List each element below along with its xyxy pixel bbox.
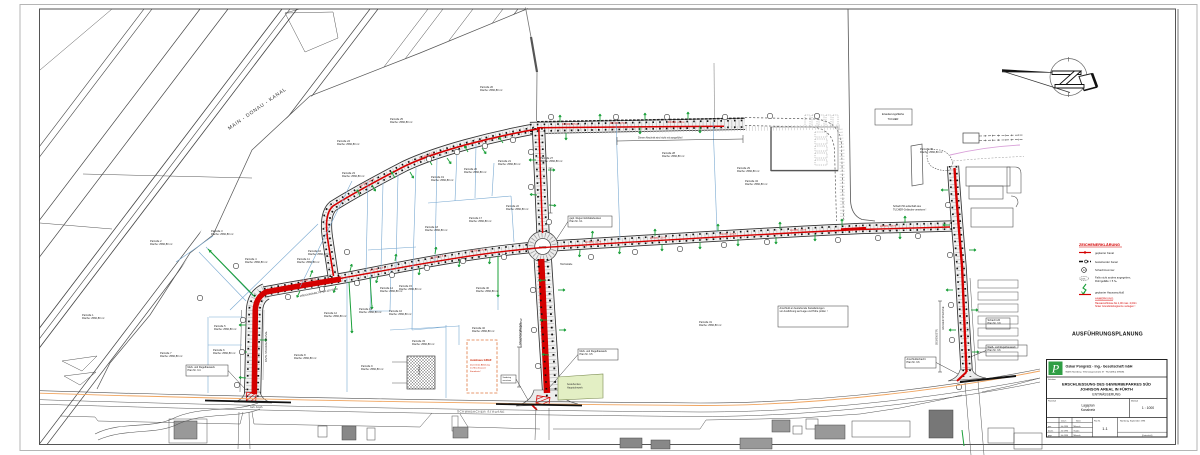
svg-text:Kanalnetz !: Kanalnetz ! [470, 370, 481, 373]
svg-text:Fläche: 2582,80 m²: Fläche: 2582,80 m² [506, 207, 528, 211]
svg-text:DN 300 - 2,5 m: DN 300 - 2,5 m [720, 232, 736, 236]
svg-text:Svejda: Svejda [1074, 431, 1081, 433]
svg-text:Fläche: 2582,80 m²: Fläche: 2582,80 m² [425, 228, 447, 232]
svg-text:Fläche: 2582,80 m²: Fläche: 2582,80 m² [214, 327, 236, 331]
svg-text:Fläche: 2582,80 m²: Fläche: 2582,80 m² [480, 88, 502, 92]
svg-text:Fläche: 2582,80 m²: Fläche: 2582,80 m² [540, 159, 562, 163]
svg-text:Fläche: 2582,80 m²: Fläche: 2582,80 m² [399, 287, 421, 291]
svg-text:Fläche: 2582,80 m²: Fläche: 2582,80 m² [337, 142, 359, 146]
svg-text:Fläche: 2582,80 m²: Fläche: 2582,80 m² [211, 232, 233, 236]
svg-text:Fläche: 2582,80 m²: Fläche: 2582,80 m² [213, 351, 235, 355]
svg-text:Plan Nr.: Plan Nr. [1094, 420, 1101, 422]
svg-text:bestehender Kanal: bestehender Kanal [1095, 260, 1118, 264]
svg-text:Mihacek: Mihacek [1074, 426, 1081, 428]
svg-text:Plan Nr. 3.1: Plan Nr. 3.1 [570, 220, 584, 223]
svg-text:DN 300 - 2,5 m: DN 300 - 2,5 m [668, 121, 684, 124]
svg-text:Fläche: 2582,80 m²: Fläche: 2582,80 m² [245, 260, 267, 264]
svg-text:SIEMENSSTR.: SIEMENSSTR. [936, 328, 939, 345]
svg-text:Fläche: 2582,80 m²: Fläche: 2582,80 m² [324, 314, 346, 318]
svg-text:bearb.: bearb. [1048, 430, 1054, 433]
svg-text:Fläche: 2582,80 m²: Fläche: 2582,80 m² [308, 252, 330, 256]
svg-text:2,5%: 2,5% [1081, 279, 1086, 281]
svg-text:Rohrgefälle = 5 ‰: Rohrgefälle = 5 ‰ [1095, 279, 1117, 283]
svg-text:AUSFÜHRUNGSPLANUNG: AUSFÜHRUNGSPLANUNG [1072, 331, 1143, 338]
svg-text:Fläche: 2582,80 m²: Fläche: 2582,80 m² [359, 310, 381, 314]
svg-text:Fläche: 2582,80 m²: Fläche: 2582,80 m² [469, 219, 491, 223]
svg-text:Fläche: 2582,80 m²: Fläche: 2582,80 m² [160, 354, 182, 358]
svg-text:Fläche: 2582,80 m²: Fläche: 2582,80 m² [920, 150, 942, 154]
svg-text:versetzen: versetzen [503, 379, 512, 382]
svg-text:1 : 1000: 1 : 1000 [1142, 406, 1154, 410]
svg-text:geplanter Kanal: geplanter Kanal [1095, 251, 1114, 255]
svg-text:Fläche: 2582,80 m²: Fläche: 2582,80 m² [699, 323, 721, 327]
svg-text:Fläche: 2582,80 m²: Fläche: 2582,80 m² [389, 312, 411, 316]
svg-text:Plan Nr. 3.9: Plan Nr. 3.9 [988, 322, 1002, 325]
svg-text:geplanter Hausanschluß: geplanter Hausanschluß [1095, 291, 1124, 295]
svg-text:Autohaus: Autohaus [418, 364, 421, 375]
svg-text:Name: Name [1076, 420, 1081, 422]
svg-text:Lageplan: Lageplan [1081, 404, 1094, 408]
svg-text:Fläche: 2582,80 m²: Fläche: 2582,80 m² [472, 329, 494, 333]
svg-text:Plan Nr. 3.6: Plan Nr. 3.6 [988, 349, 1002, 352]
svg-text:SCHWABACHER STRASSE: SCHWABACHER STRASSE [457, 410, 505, 414]
svg-text:Erweiterungsfläche: Erweiterungsfläche [882, 112, 905, 116]
svg-text:Fläche: 2582,80 m²: Fläche: 2582,80 m² [431, 178, 453, 182]
svg-text:STAURAUMKANAL: STAURAUMKANAL [518, 322, 522, 345]
svg-text:Planinhalt: Planinhalt [1048, 399, 1056, 402]
svg-text:DN 300 - 2,5 m: DN 300 - 2,5 m [880, 224, 896, 228]
svg-text:JOHNSON AREAL IN FÜRTH: JOHNSON AREAL IN FÜRTH [1080, 387, 1133, 392]
svg-text:Fläche: 2582,80 m²: Fläche: 2582,80 m² [498, 162, 520, 166]
svg-text:Schachtnummer: Schachtnummer [1095, 268, 1115, 272]
svg-text:vor Ausführung auf Lage und Hö: vor Ausführung auf Lage und Höhe prüfen … [780, 310, 828, 313]
svg-text:Kanalnetz: Kanalnetz [1081, 408, 1096, 412]
svg-text:Fläche: 2582,80 m²: Fläche: 2582,80 m² [342, 174, 364, 178]
svg-text:Plan Nr. 3.4: Plan Nr. 3.4 [188, 369, 202, 372]
svg-text:VACHER STRASSE: VACHER STRASSE [941, 306, 945, 330]
svg-text:Nürnberg, September 1996: Nürnberg, September 1996 [1120, 420, 1146, 423]
svg-text:Juli 1996: Juli 1996 [1061, 431, 1069, 433]
svg-text:Mihacek: Mihacek [1074, 435, 1081, 437]
svg-text:Geh. Ansch.: Geh. Ansch. [250, 406, 263, 409]
svg-text:Plan Nr. 3.5: Plan Nr. 3.5 [580, 353, 594, 356]
svg-text:Fläche: 2582,80 m²: Fläche: 2582,80 m² [361, 367, 383, 371]
svg-text:Autohaus GRAF: Autohaus GRAF [470, 358, 492, 362]
svg-text:Juli 1996: Juli 1996 [1061, 426, 1069, 428]
svg-text:Fläche: 2582,80 m²: Fläche: 2582,80 m² [662, 154, 684, 158]
svg-text:Fläche: 2582,80 m²: Fläche: 2582,80 m² [476, 289, 498, 293]
svg-text:Datum: Datum [1061, 419, 1067, 422]
svg-text:Fläche: 2582,80 m²: Fläche: 2582,80 m² [390, 120, 412, 124]
svg-text:90491 Nürnberg · Erlenstegenst: 90491 Nürnberg · Erlenstegenstraße 37 · … [1066, 371, 1125, 374]
svg-text:ins Mischwasser: ins Mischwasser [470, 367, 486, 370]
svg-text:Oskar Pongratz · Ing.- Gesells: Oskar Pongratz · Ing.- Gesellschaft mbH [1066, 365, 1133, 369]
svg-text:Fläche: 2582,80 m²: Fläche: 2582,80 m² [82, 316, 104, 320]
svg-text:Fläche: 2582,80 m²: Fläche: 2582,80 m² [294, 356, 316, 360]
svg-text:TUCHER-Geländes versetzen !: TUCHER-Geländes versetzen ! [893, 209, 927, 212]
svg-text:DN 300 - 2,5 m: DN 300 - 2,5 m [790, 228, 806, 232]
svg-text:Hochstraße: Hochstraße [560, 263, 573, 266]
svg-text:ZEICHENERKLÄRUNG: ZEICHENERKLÄRUNG [1079, 243, 1120, 247]
svg-text:TUCHER: TUCHER [888, 117, 899, 121]
svg-text:DN 300 - 2,5 m: DN 300 - 2,5 m [562, 123, 578, 126]
svg-text:(Unterschrift): (Unterschrift) [1142, 434, 1153, 437]
svg-text:Fläche: 2582,80 m²: Fläche: 2582,80 m² [150, 242, 172, 246]
svg-text:dezentrale Ableitung: dezentrale Ableitung [470, 364, 491, 367]
svg-text:ANMERKUNG:: ANMERKUNG: [1095, 297, 1114, 301]
svg-text:Maßstab: Maßstab [1131, 399, 1138, 402]
svg-text:ENTWÄSSERUNG: ENTWÄSSERUNG [1092, 393, 1121, 397]
svg-text:Sandsteg: Sandsteg [503, 376, 511, 379]
svg-text:Vorhaben: Vorhaben [1048, 379, 1056, 381]
svg-text:Fläche: 2582,80 m²: Fläche: 2582,80 m² [297, 260, 319, 264]
svg-text:Fläche: 2582,80 m²: Fläche: 2582,80 m² [464, 170, 486, 174]
svg-text:gepr.: gepr. [1048, 434, 1053, 437]
svg-text:Fläche: 2582,80 m²: Fläche: 2582,80 m² [745, 182, 767, 186]
svg-text:hinter Grundstücksgrenze verle: hinter Grundstücksgrenze verlegen ! [1095, 305, 1136, 308]
svg-text:Juli 1996: Juli 1996 [1061, 435, 1069, 437]
svg-text:Fläche: 2582,80 m²: Fläche: 2582,80 m² [737, 169, 759, 173]
svg-text:DN 300 - 2,5 m: DN 300 - 2,5 m [610, 122, 626, 125]
svg-text:1.1: 1.1 [1102, 426, 1108, 431]
svg-text:Dieser Abschnitt wird nicht mi: Dieser Abschnitt wird nicht mit ausgefüh… [638, 137, 684, 140]
svg-text:Fläche: 2582,80 m²: Fläche: 2582,80 m² [412, 342, 434, 346]
svg-text:Hauptrohrwerk: Hauptrohrwerk [567, 387, 583, 390]
svg-text:P: P [1051, 362, 1060, 376]
svg-text:Plan Nr. 3.6: Plan Nr. 3.6 [907, 361, 921, 364]
svg-text:gez.: gez. [1048, 426, 1052, 428]
svg-text:DN/TL STAURAUMKANAL: DN/TL STAURAUMKANAL [264, 330, 268, 362]
